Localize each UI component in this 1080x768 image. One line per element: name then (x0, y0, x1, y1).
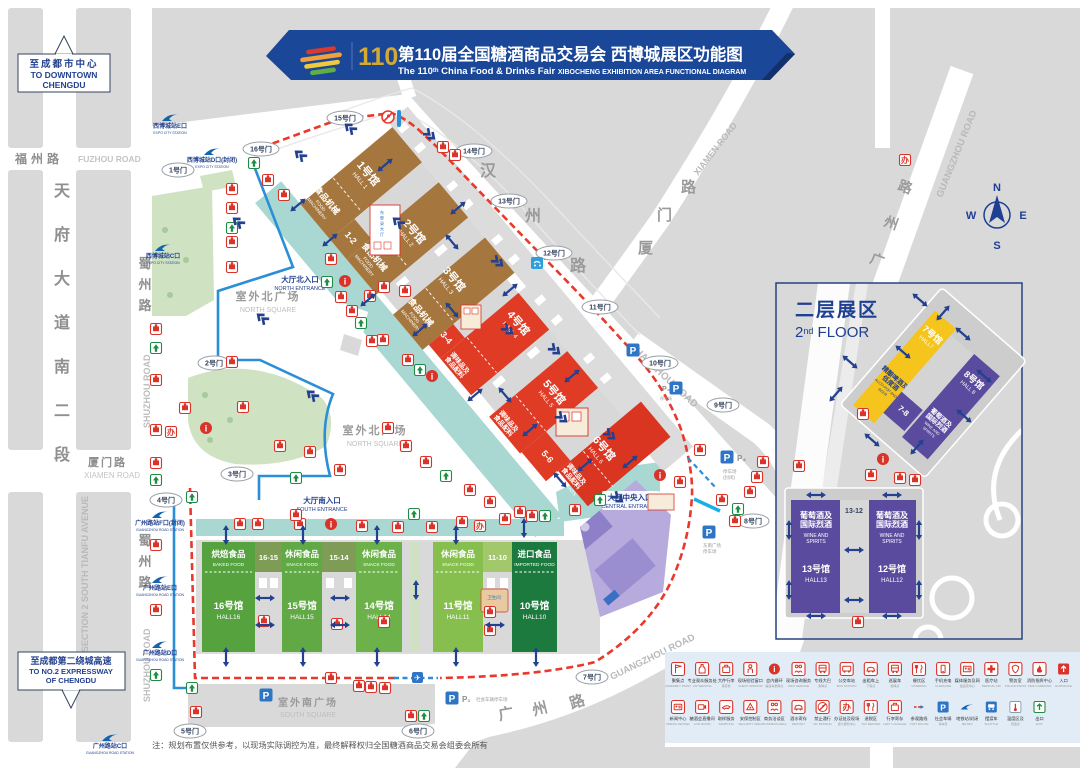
svg-text:路: 路 (570, 256, 587, 275)
svg-text:退税区: 退税区 (865, 715, 878, 722)
svg-text:P₄: P₄ (737, 454, 746, 463)
svg-text:16-15: 16-15 (259, 553, 278, 562)
svg-text:15号门: 15号门 (334, 114, 356, 123)
svg-text:GUANGZHOU ROAD STATION: GUANGZHOU ROAD STATION (136, 593, 184, 597)
svg-text:16号门: 16号门 (250, 145, 272, 154)
svg-text:6号门: 6号门 (409, 727, 427, 736)
svg-text:办证处及现场: 办证处及现场 (834, 715, 859, 722)
svg-text:公交车站: 公交车站 (838, 677, 855, 684)
svg-text:CATERING: CATERING (911, 684, 927, 688)
svg-text:11号门: 11号门 (589, 303, 610, 312)
svg-text:段: 段 (54, 445, 71, 464)
svg-text:警务室: 警务室 (1009, 677, 1022, 684)
svg-text:州: 州 (137, 277, 151, 292)
svg-text:NORTH SQUARE: NORTH SQUARE (240, 307, 297, 314)
svg-text:温度区及: 温度区及 (1007, 715, 1025, 722)
svg-text:室外北广场: 室外北广场 (343, 423, 408, 437)
svg-text:CHENGDU: CHENGDU (43, 80, 86, 90)
svg-text:SNACK FOOD: SNACK FOOD (442, 562, 474, 568)
svg-text:取样服务: 取样服务 (718, 715, 736, 722)
svg-text:14号门: 14号门 (463, 147, 485, 156)
svg-text:HALL11: HALL11 (446, 614, 469, 621)
svg-text:西博城站D口(封闭): 西博城站D口(封闭) (187, 156, 237, 164)
svg-text:FUZHOU ROAD: FUZHOU ROAD (78, 154, 141, 164)
svg-text:出租车上: 出租车上 (862, 677, 879, 684)
svg-text:EXPO CITY STATION: EXPO CITY STATION (153, 131, 187, 135)
svg-text:BAKED FOOD: BAKED FOOD (213, 562, 245, 568)
svg-text:室外南广场: 室外南广场 (278, 696, 338, 709)
svg-text:SHUZHOU ROAD: SHUZHOU ROAD (142, 628, 152, 702)
svg-text:SNACK FOOD: SNACK FOOD (286, 562, 318, 568)
svg-text:FIRE COMMAND: FIRE COMMAND (1028, 684, 1052, 688)
svg-text:10号馆: 10号馆 (520, 600, 550, 612)
svg-text:二: 二 (54, 403, 70, 420)
svg-text:安保控制区: 安保控制区 (740, 715, 761, 722)
svg-text:LIVE ROOM: LIVE ROOM (694, 722, 711, 726)
svg-text:HALL16: HALL16 (217, 614, 241, 621)
svg-text:休闲食品: 休闲食品 (284, 549, 320, 559)
svg-text:CHECK WINDOW: CHECK WINDOW (738, 684, 763, 688)
svg-text:110: 110 (358, 43, 398, 71)
svg-text:专业观众服务处: 专业观众服务处 (687, 677, 717, 684)
svg-text:医疗站: 医疗站 (985, 677, 998, 684)
svg-text:2号门: 2号门 (205, 359, 223, 368)
svg-text:商务洽谈区: 商务洽谈区 (764, 715, 785, 722)
svg-text:NORTH ENTRANCE: NORTH ENTRANCE (274, 286, 326, 292)
svg-text:SECURITY AREA: SECURITY AREA (738, 722, 762, 726)
svg-text:SOUTH ENTRANCE: SOUTH ENTRANCE (296, 507, 347, 513)
svg-text:SPIRITS: SPIRITS (882, 539, 902, 545)
svg-text:SNACK FOOD: SNACK FOOD (363, 562, 395, 568)
svg-text:BUS STATION: BUS STATION (837, 684, 857, 688)
svg-text:厦门路: 厦门路 (88, 455, 127, 469)
svg-text:地铁站/封闭: 地铁站/封闭 (956, 715, 978, 722)
svg-text:会内循环: 会内循环 (766, 677, 783, 684)
svg-text:S: S (993, 240, 1000, 252)
svg-text:N: N (993, 182, 1001, 194)
svg-text:NO PASSING: NO PASSING (813, 722, 832, 726)
svg-text:新闻中心: 新闻中心 (670, 715, 688, 722)
svg-text:13号门: 13号门 (498, 197, 520, 206)
svg-text:HALL10: HALL10 (523, 614, 547, 621)
svg-text:7号门: 7号门 (583, 673, 601, 682)
svg-text:P: P (940, 702, 946, 712)
svg-text:现场检验窗口: 现场检验窗口 (738, 677, 763, 684)
svg-text:停车场: 停车场 (660, 395, 672, 401)
svg-text:VISIT ROUTE: VISIT ROUTE (910, 722, 929, 726)
svg-text:西博城站E口: 西博城站E口 (153, 122, 187, 130)
svg-text:广州路站C口: 广州路站C口 (93, 742, 127, 750)
svg-text:16号馆: 16号馆 (214, 600, 244, 612)
svg-text:出口: 出口 (1035, 715, 1043, 722)
svg-text:INFO SERVICE: INFO SERVICE (788, 684, 809, 688)
svg-text:i: i (773, 665, 775, 674)
svg-text:IMPORTED FOOD: IMPORTED FOOD (514, 562, 555, 568)
svg-text:15-14: 15-14 (329, 553, 349, 562)
svg-text:办: 办 (842, 702, 851, 712)
svg-text:下客点: 下客点 (866, 683, 875, 688)
svg-text:11号馆: 11号馆 (443, 600, 473, 612)
svg-text:参观路线: 参观路线 (911, 715, 929, 722)
svg-text:DEPOSIT: DEPOSIT (792, 722, 805, 726)
svg-text:NORTH SQUARE: NORTH SQUARE (347, 441, 404, 448)
svg-text:停车场: 停车场 (703, 548, 717, 555)
svg-text:停车区: 停车区 (939, 721, 948, 726)
svg-text:EXPO CITY STATION: EXPO CITY STATION (195, 165, 229, 169)
svg-text:社会车辆: 社会车辆 (935, 715, 952, 722)
svg-text:TO DOWNTOWN: TO DOWNTOWN (31, 70, 98, 80)
svg-text:ASSEMBLY POINT: ASSEMBLY POINT (665, 684, 691, 688)
svg-text:国际烈酒: 国际烈酒 (800, 519, 832, 529)
svg-text:BUSINESS AREA: BUSINESS AREA (762, 722, 786, 726)
svg-text:广: 广 (497, 704, 515, 724)
svg-text:葡萄酒及: 葡萄酒及 (875, 510, 909, 520)
svg-text:SAMPLING: SAMPLING (718, 722, 734, 726)
svg-text:州: 州 (524, 207, 541, 225)
svg-text:汉: 汉 (480, 161, 497, 180)
svg-text:聚集点: 聚集点 (672, 677, 685, 684)
svg-text:厦: 厦 (638, 240, 654, 257)
svg-text:PRESS CENTER: PRESS CENTER (666, 722, 690, 726)
svg-text:VIP SERVICE: VIP SERVICE (693, 684, 712, 688)
svg-text:广州路站D口: 广州路站D口 (143, 649, 177, 657)
svg-text:餐饮区: 餐饮区 (913, 677, 926, 684)
svg-text:12号馆: 12号馆 (878, 563, 906, 574)
svg-text:福州路: 福州路 (14, 151, 63, 166)
svg-text:卫生间: 卫生间 (487, 594, 501, 601)
svg-text:大厅北入口: 大厅北入口 (281, 274, 319, 284)
svg-text:✈: ✈ (414, 674, 421, 683)
svg-text:糖酒会直播间: 糖酒会直播间 (690, 715, 715, 722)
svg-text:社会车辆停车场: 社会车辆停车场 (476, 696, 508, 703)
svg-text:第110届全国糖酒商品交易会 西博城展区功能图: 第110届全国糖酒商品交易会 西博城展区功能图 (398, 44, 743, 64)
svg-text:专线大巴: 专线大巴 (814, 677, 831, 684)
svg-text:现场咨询服务: 现场咨询服务 (786, 677, 812, 684)
svg-text:媒体服务及网: 媒体服务及网 (955, 677, 980, 684)
svg-text:葡萄酒及: 葡萄酒及 (799, 510, 833, 520)
svg-text:东南广场: 东南广场 (703, 542, 721, 549)
svg-text:进口食品: 进口食品 (517, 549, 552, 559)
svg-text:MEDICAL AID: MEDICAL AID (982, 684, 1002, 688)
svg-text:TAX REFUND: TAX REFUND (861, 722, 881, 726)
svg-text:络运营中心: 络运营中心 (960, 683, 975, 688)
svg-text:GUANGZHOU ROAD STATION: GUANGZHOU ROAD STATION (136, 528, 184, 532)
svg-text:手机充电: 手机充电 (935, 677, 953, 684)
svg-text:GUANGZHOU ROAD STATION: GUANGZHOU ROAD STATION (136, 658, 184, 662)
svg-text:乘降点: 乘降点 (818, 683, 827, 688)
svg-text:巡展车: 巡展车 (889, 677, 902, 684)
svg-text:大: 大 (54, 269, 70, 288)
svg-text:METRO: METRO (962, 722, 973, 726)
svg-text:HALL15: HALL15 (290, 614, 314, 621)
svg-text:EXIT: EXIT (1036, 722, 1043, 726)
svg-text:E: E (1019, 210, 1026, 222)
svg-text:SECTION 2 SOUTH TIANFU AVENUE: SECTION 2 SOUTH TIANFU AVENUE (80, 496, 90, 652)
svg-text:观众服务中心: 观众服务中心 (838, 721, 856, 726)
svg-text:13号馆: 13号馆 (802, 563, 830, 574)
svg-text:CHARGING: CHARGING (935, 684, 952, 688)
svg-text:至成都第二绕城高速: 至成都第二绕城高速 (30, 655, 111, 666)
svg-text:SHUTTLE: SHUTTLE (984, 722, 998, 726)
svg-text:5号门: 5号门 (181, 727, 199, 736)
svg-text:GUANGZHOU ROAD STATION: GUANGZHOU ROAD STATION (86, 751, 134, 755)
svg-text:蜀: 蜀 (138, 533, 151, 548)
svg-text:摆渡车: 摆渡车 (985, 715, 998, 722)
svg-text:二层展区: 二层展区 (795, 299, 879, 321)
svg-text:12号门: 12号门 (543, 249, 565, 258)
svg-text:SPIRITS: SPIRITS (806, 539, 826, 545)
svg-text:行李寄存: 行李寄存 (887, 715, 904, 722)
svg-text:LEFT LUGGAGE: LEFT LUGGAGE (883, 722, 906, 726)
svg-text:4号门: 4号门 (157, 496, 175, 505)
svg-text:SOUTH SQUARE: SOUTH SQUARE (280, 712, 336, 719)
svg-text:TO NO.2 EXPRESSWAY: TO NO.2 EXPRESSWAY (29, 667, 113, 676)
svg-text:广州路站F口(封闭): 广州路站F口(封闭) (135, 519, 185, 527)
svg-text:HALL13: HALL13 (805, 578, 827, 584)
svg-text:广州路站E口: 广州路站E口 (143, 584, 177, 592)
svg-text:停车场: 停车场 (723, 468, 737, 475)
svg-text:府: 府 (54, 225, 70, 244)
svg-text:P₁: P₁ (462, 695, 471, 704)
svg-text:至成都市中心: 至成都市中心 (29, 58, 98, 70)
svg-text:XIAMEN ROAD: XIAMEN ROAD (84, 471, 140, 480)
svg-text:烘焙食品: 烘焙食品 (211, 549, 246, 559)
svg-text:酒水寄存: 酒水寄存 (790, 715, 807, 722)
svg-text:10号门: 10号门 (649, 359, 671, 368)
svg-text:门: 门 (657, 206, 672, 224)
svg-text:W: W (966, 210, 977, 222)
svg-text:注：规划布置仅供参考，以现场实际调控为准，最终解释权归全国糖: 注：规划布置仅供参考，以现场实际调控为准，最终解释权归全国糖酒商品交易会组委会所… (152, 740, 488, 750)
svg-text:测温点: 测温点 (1011, 721, 1020, 726)
svg-text:OF CHENGDU: OF CHENGDU (46, 676, 96, 685)
svg-text:1号门: 1号门 (169, 166, 187, 175)
svg-text:道: 道 (54, 313, 70, 332)
svg-text:13-12: 13-12 (845, 508, 863, 515)
svg-text:大厅南入口: 大厅南入口 (303, 495, 341, 505)
svg-text:休闲食品: 休闲食品 (361, 549, 397, 559)
svg-text:SHUZHOU ROAD: SHUZHOU ROAD (142, 354, 152, 428)
svg-text:14号馆: 14号馆 (364, 600, 394, 612)
svg-text:乘降点: 乘降点 (890, 683, 899, 688)
svg-text:EXPO CITY STATION: EXPO CITY STATION (146, 261, 180, 265)
svg-text:POLICE ROOM: POLICE ROOM (1005, 684, 1027, 688)
svg-text:南: 南 (54, 357, 70, 376)
svg-text:11-10: 11-10 (488, 553, 507, 562)
svg-text:禁止通行: 禁止通行 (814, 715, 831, 722)
svg-text:路: 路 (681, 178, 697, 196)
svg-text:寄存处: 寄存处 (722, 683, 731, 688)
svg-text:休闲食品: 休闲食品 (440, 549, 476, 559)
svg-text:摆渡车乘降点: 摆渡车乘降点 (765, 683, 783, 688)
svg-text:9号门: 9号门 (714, 401, 732, 410)
svg-text:西博城站C口: 西博城站C口 (146, 252, 180, 260)
svg-text:15号馆: 15号馆 (287, 600, 317, 612)
svg-text:P₄: P₄ (662, 386, 670, 393)
svg-text:大件行李: 大件行李 (718, 677, 736, 684)
svg-text:ENTRANCE: ENTRANCE (1055, 684, 1072, 688)
svg-text:路: 路 (138, 298, 152, 313)
svg-text:HALL12: HALL12 (881, 578, 903, 584)
svg-text:8号门: 8号门 (744, 517, 762, 526)
svg-text:消防指挥中心: 消防指挥中心 (1027, 677, 1053, 684)
svg-text:天: 天 (54, 183, 71, 200)
svg-text:州: 州 (137, 554, 151, 569)
svg-text:国际烈酒: 国际烈酒 (876, 519, 908, 529)
svg-text:入口: 入口 (1059, 678, 1067, 683)
svg-text:(封闭): (封闭) (723, 474, 735, 481)
svg-text:3号门: 3号门 (228, 470, 246, 479)
